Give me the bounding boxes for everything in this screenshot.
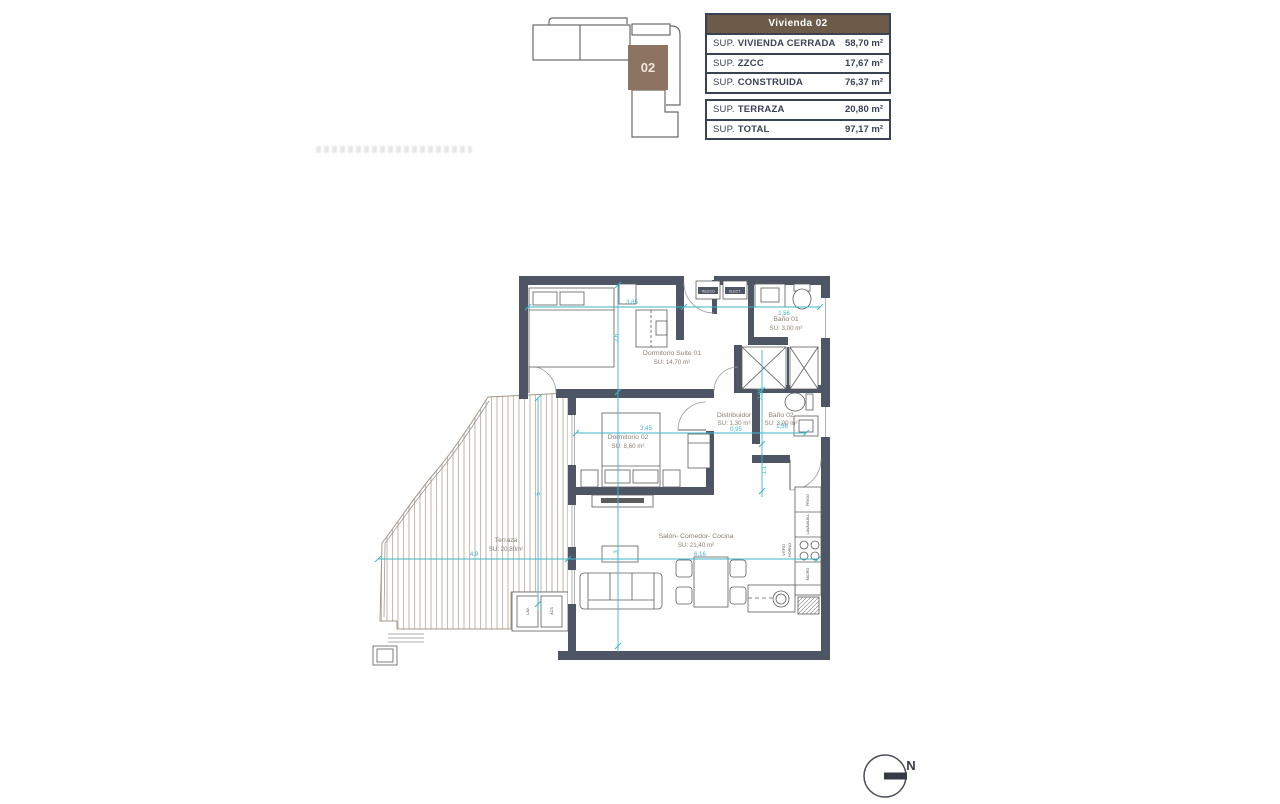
dim-2-65: 2,65 <box>758 388 764 400</box>
table-row: SUP.ZZCC 17,67 m² <box>707 53 889 73</box>
sink-counter <box>755 284 785 307</box>
row-value: 76,37 m² <box>845 77 883 88</box>
dining-table <box>694 557 728 607</box>
dorm2-door-arc <box>678 402 706 430</box>
chair <box>676 560 692 577</box>
terraza-name: Terraza <box>495 537 518 544</box>
suite-bed <box>529 288 614 367</box>
distribuidor-area: SU: 1,30 m² <box>717 420 750 427</box>
salon-name: Salón- Comedor- Cocina <box>659 533 734 540</box>
faint-watermark-text <box>316 146 472 153</box>
key-plan: 02 <box>500 2 700 150</box>
surface-table-main: Vivienda 02 SUP.VIVIENDA CERRADA 58,70 m… <box>705 13 891 94</box>
row-value: 58,70 m² <box>845 38 883 49</box>
table-row: SUP.CONSTRUIDA 76,37 m² <box>707 72 889 92</box>
dim-0-95: 0,95 <box>730 427 742 433</box>
row-label: SUP.TERRAZA <box>713 104 785 115</box>
kitchen-sink <box>798 597 819 614</box>
terrace-steps <box>388 634 424 642</box>
dim-2-6: 2,6 <box>614 333 620 342</box>
row-label: SUP.TOTAL <box>713 124 770 135</box>
tv <box>601 498 644 503</box>
bano1-area: SU: 3,00 m² <box>769 325 802 332</box>
terraza-area: SU: 20,80m² <box>489 546 524 553</box>
key-plan-wing-left <box>533 25 630 60</box>
row-value: 97,17 m² <box>845 124 883 135</box>
toilet2-tank <box>806 394 813 410</box>
nightstand <box>581 470 598 487</box>
chair <box>730 587 746 604</box>
dim-1-1: 1,1 <box>762 465 768 474</box>
dorm2-area: SU: 8,60 m² <box>611 443 644 450</box>
key-plan-wing-bottom <box>632 90 678 137</box>
row-value: 17,67 m² <box>845 58 883 69</box>
north-label: N <box>906 758 915 773</box>
salon-area: SU: 21,40 m² <box>678 542 714 549</box>
key-plan-unit-label: 02 <box>641 60 655 75</box>
bano2-name: Baño 02 <box>768 412 794 419</box>
dim-6-16: 6,16 <box>694 552 706 558</box>
teleco-label: TELECO <box>701 290 715 294</box>
row-label: SUP.VIVIENDA CERRADA <box>713 38 836 49</box>
micro-label: MICRO <box>806 568 810 581</box>
dishwasher-label: LAVAVAJILL <box>806 514 810 535</box>
key-plan-roof-line <box>549 18 627 25</box>
table-row: SUP.TERRAZA 20,80 m² <box>707 101 889 119</box>
dorm2-bed <box>602 413 660 487</box>
north-compass: N <box>850 742 928 804</box>
bano1-name: Baño 01 <box>773 316 799 323</box>
table-row: SUP.VIVIENDA CERRADA 58,70 m² <box>707 35 889 53</box>
table-row: SUP.TOTAL 97,17 m² <box>707 119 889 139</box>
suite-terrace-door-arc <box>529 366 556 393</box>
dim-3-85: 3,85 <box>626 300 638 306</box>
sofa <box>580 573 662 609</box>
chair <box>676 587 692 604</box>
kitchen-island <box>748 585 795 612</box>
floor-plan: LAV. ACS <box>360 265 850 675</box>
row-value: 20,80 m² <box>845 104 883 115</box>
dim-3-45: 3,45 <box>640 426 652 432</box>
surface-table-totals: SUP.TERRAZA 20,80 m² SUP.TOTAL 97,17 m² <box>705 99 891 140</box>
dorm2-furniture <box>581 413 710 487</box>
toilet2 <box>785 393 805 411</box>
elect-label: ELECT. <box>729 290 741 294</box>
nightstand <box>663 470 680 487</box>
fridge-label: FRIGO <box>806 494 810 506</box>
dim-4-9: 4,9 <box>470 552 479 558</box>
compass-needle <box>884 773 907 780</box>
bano2-door-arc <box>790 459 821 490</box>
key-plan-outline-curve <box>666 26 680 105</box>
distribuidor-name: Distribuidor <box>717 412 752 419</box>
washer-label: LAV. <box>526 607 530 615</box>
suite-area: SU: 14,70 m² <box>654 359 690 366</box>
vitro-label: VITRO <box>782 544 786 556</box>
acs-label: ACS <box>550 607 554 615</box>
table-header: Vivienda 02 <box>707 15 889 35</box>
bano2-area: SU: 3,00 m² <box>764 420 797 427</box>
dorm2-wardrobe <box>688 434 710 468</box>
key-plan-top-right-block <box>632 24 670 35</box>
dorm2-name: Dormitorio 02 <box>608 434 649 441</box>
desk <box>636 310 667 347</box>
toilet <box>793 289 811 309</box>
row-label: SUP.ZZCC <box>713 58 764 69</box>
suite-name: Dormitorio Suite 01 <box>643 350 701 357</box>
side-table <box>602 546 638 562</box>
terrace: LAV. ACS <box>373 393 568 665</box>
row-label: SUP.CONSTRUIDA <box>713 77 803 88</box>
chair <box>730 560 746 577</box>
horno-label: HORNO <box>788 543 792 557</box>
